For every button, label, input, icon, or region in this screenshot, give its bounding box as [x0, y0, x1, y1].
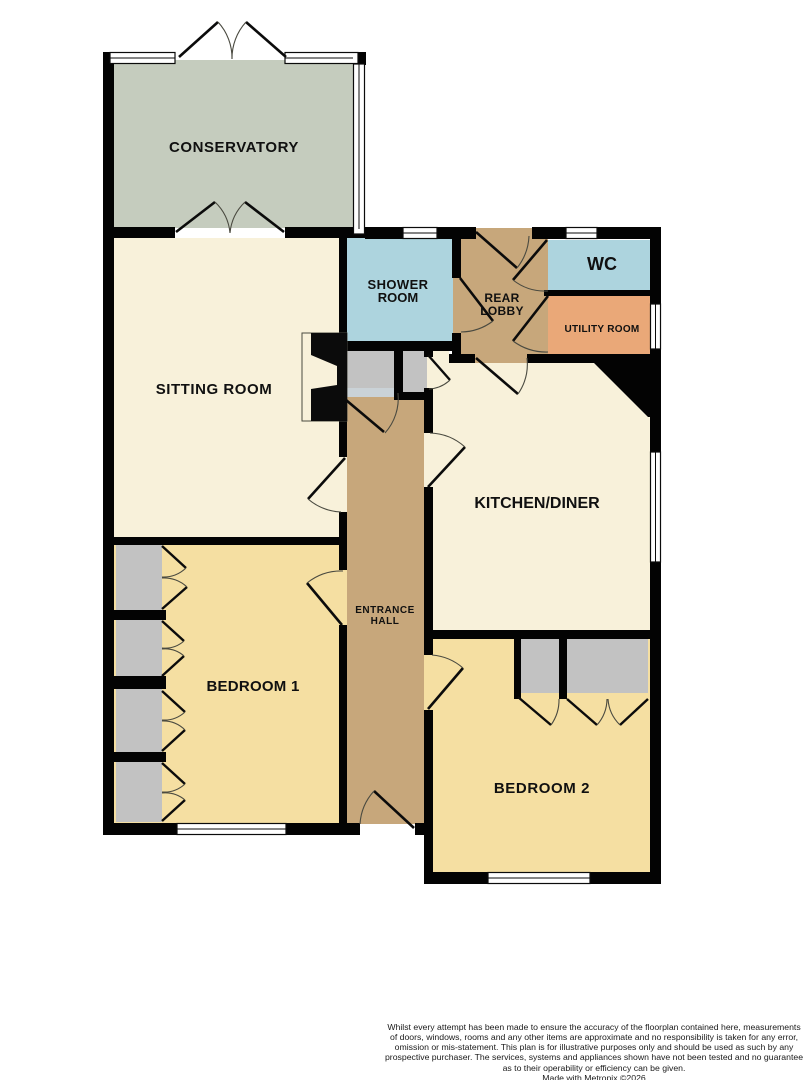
svg-text:UTILITY ROOM: UTILITY ROOM: [564, 324, 639, 335]
svg-text:ENTRANCE: ENTRANCE: [355, 605, 415, 616]
svg-text:BEDROOM 2: BEDROOM 2: [494, 780, 590, 797]
svg-text:LOBBY: LOBBY: [480, 304, 524, 318]
svg-text:REAR: REAR: [484, 291, 519, 305]
svg-text:HALL: HALL: [371, 616, 400, 627]
svg-text:BEDROOM 1: BEDROOM 1: [206, 678, 299, 695]
svg-text:ROOM: ROOM: [378, 290, 418, 305]
svg-text:CONSERVATORY: CONSERVATORY: [169, 139, 299, 156]
svg-text:KITCHEN/DINER: KITCHEN/DINER: [474, 495, 600, 512]
svg-text:WC: WC: [587, 254, 617, 274]
svg-text:SITTING ROOM: SITTING ROOM: [156, 381, 273, 398]
